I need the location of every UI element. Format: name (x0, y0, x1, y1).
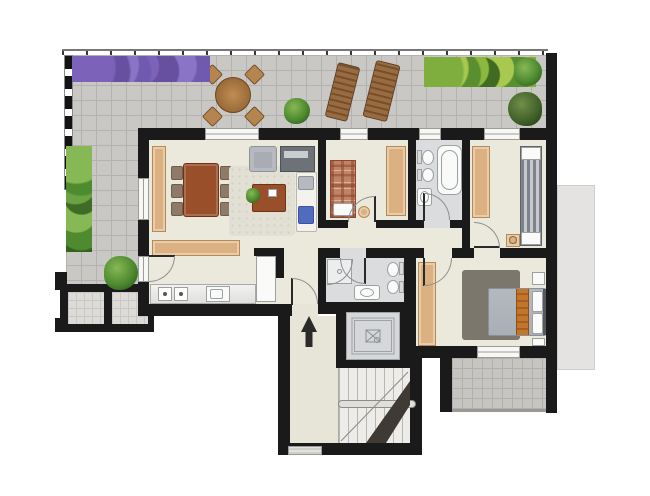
floor-plan (0, 0, 650, 496)
stair-lower-flight-shading (366, 381, 410, 443)
plan-annotations (0, 0, 650, 496)
entrance-arrow (301, 316, 317, 347)
